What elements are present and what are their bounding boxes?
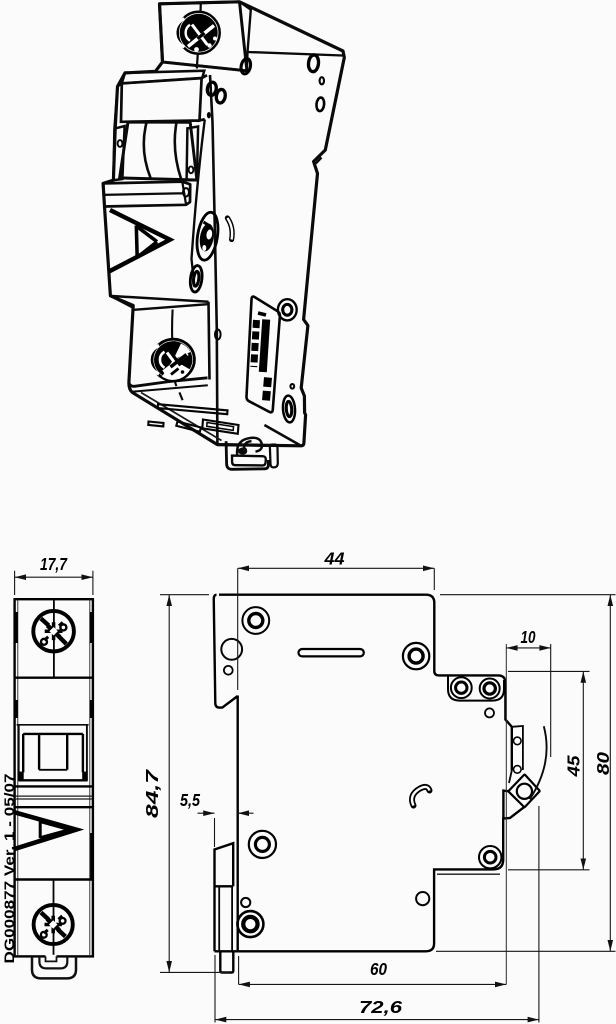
svg-text:72,6: 72,6 [359,997,402,1017]
svg-text:45: 45 [564,755,584,777]
svg-text:5,5: 5,5 [180,790,200,810]
svg-text:DG000877 Ver. 1 - 05/07: DG000877 Ver. 1 - 05/07 [1,773,17,963]
svg-text:17,7: 17,7 [40,554,68,574]
svg-text:10: 10 [521,627,536,647]
svg-text:84,7: 84,7 [142,768,162,818]
svg-text:80: 80 [593,752,613,775]
svg-text:44: 44 [323,549,344,569]
svg-text:60: 60 [370,959,387,979]
